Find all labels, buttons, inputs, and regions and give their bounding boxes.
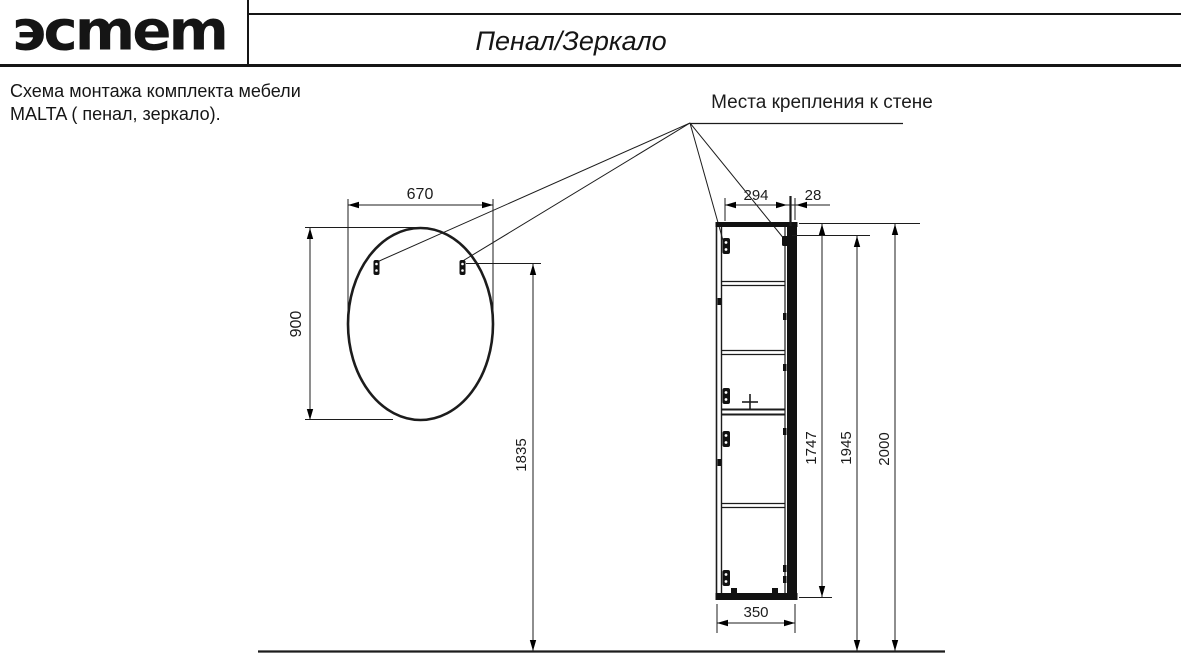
pin-mark <box>718 298 722 305</box>
bracket-plate <box>723 431 731 447</box>
dim-text-2000: 2000 <box>876 432 893 465</box>
arrowhead <box>482 202 493 208</box>
dimension-mirror-height: 900 <box>288 228 420 421</box>
dimension-cabinet-mount-height: 1945 <box>838 236 860 651</box>
arrowhead <box>784 620 795 626</box>
bracket-plate <box>723 238 731 254</box>
front-door-panel <box>787 222 797 600</box>
bracket-hole <box>375 269 378 272</box>
cabinet-mount-bracket-mid-upper <box>723 388 731 404</box>
wall-mount-label: Места крепления к стене <box>711 92 933 113</box>
dim-text-1945: 1945 <box>838 431 855 464</box>
cabinet-mount-bracket-mid-lower <box>723 431 731 447</box>
center-cross-mark <box>742 394 758 410</box>
arrowhead <box>819 586 825 597</box>
bracket-hole <box>725 441 728 444</box>
bracket-plate <box>723 570 731 586</box>
cabinet-mount-bracket-top <box>723 238 731 254</box>
top-panel <box>716 222 798 227</box>
bracket-plate <box>460 260 466 275</box>
dim-text-900: 900 <box>288 311 305 338</box>
arrowhead <box>854 640 860 651</box>
arrowhead <box>307 409 313 420</box>
arrowhead <box>892 224 898 235</box>
mirror-ellipse <box>348 228 493 420</box>
bracket-hole <box>725 241 728 244</box>
cabinet-mount-bracket-top-right <box>782 236 789 246</box>
mirror-view: 670 900 1835 <box>288 186 541 651</box>
dim-text-1835: 1835 <box>513 438 530 471</box>
arrowhead <box>717 620 728 626</box>
cabinet-view: 294 28 1747 1945 2000 <box>716 187 921 651</box>
dim-text-670: 670 <box>407 186 434 203</box>
dim-text-1747: 1747 <box>803 431 820 464</box>
pin-mark <box>783 364 787 371</box>
arrowhead <box>725 202 736 208</box>
arrowhead <box>530 264 536 275</box>
pin-mark <box>783 565 787 572</box>
arrowhead <box>307 228 313 239</box>
dim-text-294: 294 <box>743 187 768 204</box>
bracket-hole <box>725 391 728 394</box>
bracket-hole <box>375 263 378 266</box>
bracket-hole <box>725 580 728 583</box>
drawing-canvas: эcmem Пенал/Зеркало Схема монтажа компле… <box>0 0 1181 655</box>
bracket-hole <box>461 263 464 266</box>
dim-text-28: 28 <box>805 187 822 204</box>
arrowhead <box>892 640 898 651</box>
dimension-cabinet-height: 1747 <box>803 224 825 597</box>
cabinet-mount-bracket-bottom <box>723 570 731 586</box>
cabinet-outline <box>716 222 798 600</box>
mirror-mount-bracket-right <box>460 260 466 275</box>
bracket-hole <box>725 434 728 437</box>
bracket-hole <box>725 398 728 401</box>
dimension-cabinet-depth: 350 <box>717 604 795 633</box>
wall-mount-annotation: Места крепления к стене <box>377 92 933 262</box>
bracket-hole <box>725 248 728 251</box>
bracket-hole <box>725 573 728 576</box>
pin-mark <box>783 428 787 435</box>
pin-mark <box>783 576 787 583</box>
leader-mirror-right <box>461 123 690 262</box>
dim-text-350: 350 <box>743 604 768 621</box>
mirror-mount-bracket-left <box>374 260 380 275</box>
cabinet-shelves <box>722 282 785 508</box>
dimension-mirror-mount-height: 1835 <box>466 264 541 652</box>
bottom-panel <box>716 593 798 600</box>
arrowhead <box>776 202 787 208</box>
foot-mark <box>772 588 778 593</box>
dimension-cabinet-total-height: 2000 <box>876 224 898 651</box>
arrowhead <box>530 640 536 651</box>
arrowhead <box>854 236 860 247</box>
bracket-plate <box>374 260 380 275</box>
drawing: Места крепления к стене <box>0 0 1181 655</box>
arrowhead <box>348 202 359 208</box>
bracket-hole <box>461 269 464 272</box>
foot-mark <box>731 588 737 593</box>
pin-mark <box>783 313 787 320</box>
pin-mark <box>718 459 722 466</box>
bracket-plate <box>723 388 731 404</box>
dimension-cabinet-top: 294 28 <box>725 187 830 221</box>
arrowhead <box>819 224 825 235</box>
